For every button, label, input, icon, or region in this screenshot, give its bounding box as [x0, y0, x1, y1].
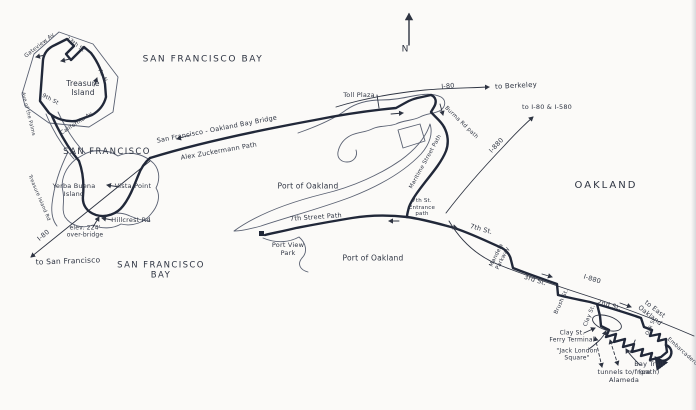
label-i880-south: I-880: [582, 274, 601, 287]
label-california-av: California Av: [60, 111, 95, 137]
label-toll-plaza: Toll Plaza: [343, 92, 375, 100]
label-sf-bay-south: SAN FRANCISCO BAY: [117, 261, 205, 282]
label-to-i80-i580: to I-80 & I-580: [522, 104, 572, 112]
label-jack-london-square: "Jack London Square": [556, 348, 597, 363]
label-port-of-oakland-lower: Port of Oakland: [343, 253, 404, 262]
label-hillcrest-rd: Hillcrest Rd: [111, 217, 150, 225]
label-clay-st-ferry-terminal: Clay St. Ferry Terminal: [549, 330, 594, 345]
label-tunnels-alameda: tunnels to/from Alameda: [597, 369, 650, 385]
label-seventh-street-path: 7th Street Path: [290, 212, 342, 224]
map-canvas: SAN FRANCISCO BAYSAN FRANCISCOSAN FRANCI…: [0, 0, 696, 410]
label-ave-of-the-palms: Ave of the Palms: [20, 91, 37, 136]
label-port-view-park: Port View Park: [272, 242, 304, 258]
label-to-san-francisco: to San Francisco: [36, 255, 101, 266]
label-third-st: 3rd St.: [523, 274, 547, 288]
label-yerba-buena-island: Yerba Buena Island: [53, 183, 96, 199]
label-clay-st: Clay St.: [583, 304, 598, 328]
label-bay-bridge: San Francisco - Oakland Bay Bridge: [156, 114, 278, 145]
label-mandela-parkway: Mandela Parkway: [489, 243, 512, 271]
label-treasure-island: Treasure Island: [66, 79, 99, 97]
label-i880-north: I-880: [488, 137, 506, 155]
labels-layer: SAN FRANCISCO BAYSAN FRANCISCOSAN FRANCI…: [0, 0, 696, 410]
label-i80-east: I-80: [441, 82, 455, 91]
label-seventh-st-entrance: 7th St. Entrance path: [409, 198, 435, 218]
label-i80-west: I-80: [36, 229, 51, 244]
label-compass-n: N: [402, 45, 409, 56]
label-second-st: 2nd St.: [596, 299, 622, 313]
label-san-francisco: SAN FRANCISCO: [63, 147, 151, 157]
label-sf-bay-north: SAN FRANCISCO BAY: [143, 55, 264, 66]
label-vista-point: Vista Point: [115, 183, 151, 191]
label-maritime-street-path: Maritime Street Path: [408, 134, 443, 190]
label-burma-rd-path: Burma Rd path: [443, 105, 479, 140]
label-port-of-oakland-upper: Port of Oakland: [278, 181, 339, 190]
label-oakland: OAKLAND: [575, 180, 638, 192]
label-brush-st: Brush St.: [553, 288, 570, 315]
label-treasure-island-rd: Treasure Island Rd: [27, 174, 52, 222]
label-ninth-st: 9th St: [41, 93, 60, 107]
label-gateview-av: Gateview Av: [24, 32, 57, 60]
label-to-berkeley: to Berkeley: [495, 81, 537, 92]
label-elevation: elev. 224' over-bridge: [67, 225, 104, 240]
label-thirteenth-st: 13th St: [64, 36, 85, 54]
label-seventh-st: 7th St.: [469, 223, 493, 237]
label-zuckermann-path: Alex Zuckermann Path: [180, 141, 257, 162]
label-oak-st: Oak St: [644, 318, 657, 337]
